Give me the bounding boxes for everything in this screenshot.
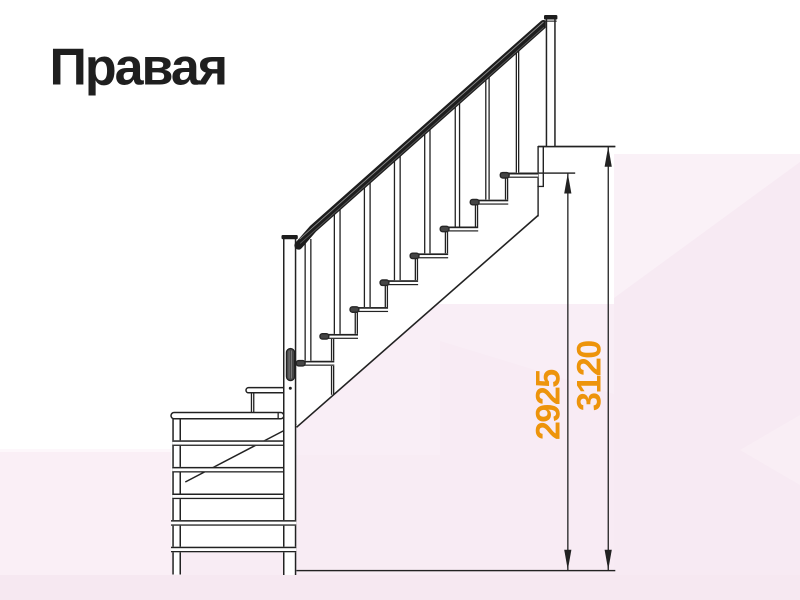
svg-text:3120: 3120: [571, 341, 609, 411]
svg-text:Правая: Правая: [50, 39, 227, 97]
svg-text:2925: 2925: [530, 370, 568, 440]
